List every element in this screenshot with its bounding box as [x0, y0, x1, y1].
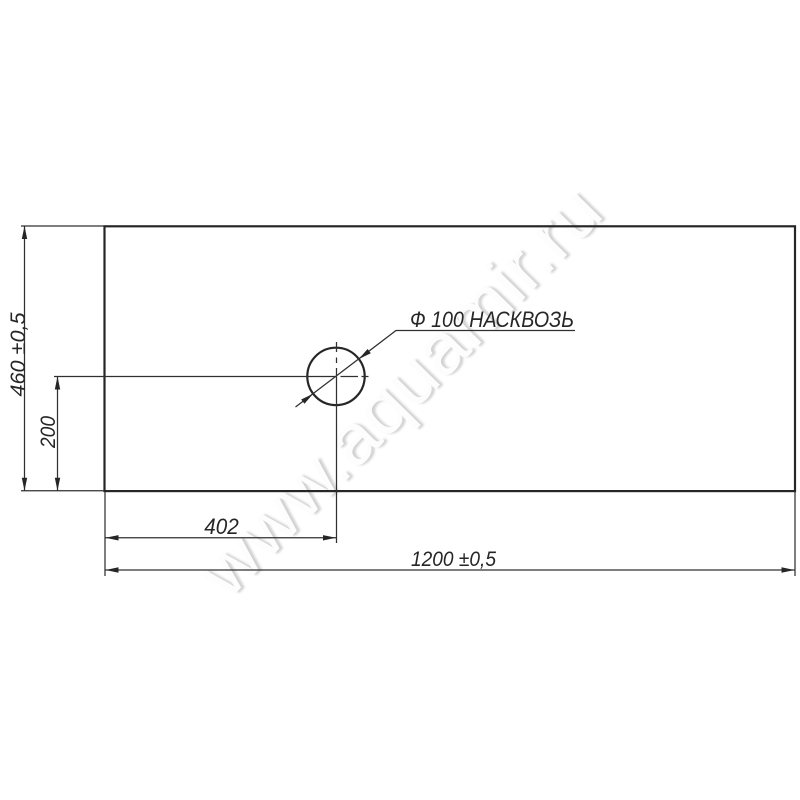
svg-text:Ф 100 НАСКВОЗЬ: Ф 100 НАСКВОЗЬ — [410, 307, 574, 332]
svg-text:200: 200 — [37, 416, 60, 449]
svg-text:460 ±0,5: 460 ±0,5 — [7, 312, 30, 396]
svg-text:1200 ±0,5: 1200 ±0,5 — [411, 548, 496, 571]
svg-text:402: 402 — [204, 514, 239, 539]
